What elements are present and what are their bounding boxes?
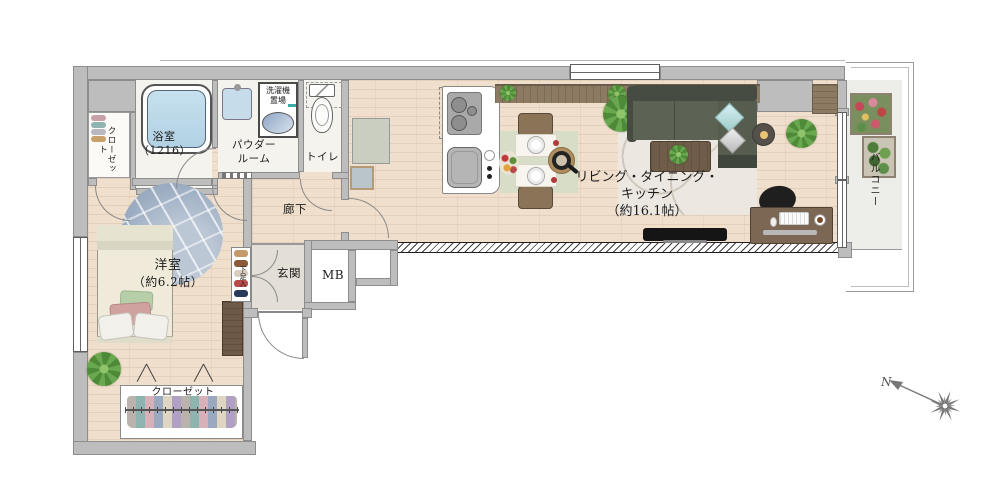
entrance-label: 玄関 (272, 266, 306, 281)
plant (669, 145, 688, 164)
toilet-label: トイレ (304, 151, 341, 165)
wall (73, 441, 256, 455)
plant (786, 119, 817, 148)
bedroom-closet-label: クローゼット (146, 386, 220, 399)
washbasin-faucet (234, 84, 241, 91)
hanging-clothes (91, 115, 106, 121)
wall (390, 250, 398, 286)
ldk-line2: キッチン (552, 187, 742, 204)
laundry-label: 洗濯機 置場 (259, 86, 297, 107)
wall (348, 250, 356, 302)
wall (88, 80, 136, 112)
bedroom-cabinet (222, 301, 243, 356)
hanger-mark (135, 364, 159, 384)
ldk-size: （約16.1帖） (552, 204, 742, 221)
wall (73, 66, 570, 80)
bathroom-size: （1216） (138, 144, 190, 158)
wall (304, 240, 398, 250)
window (73, 237, 88, 352)
plate (527, 167, 545, 185)
stove-burner (451, 97, 467, 113)
tall-cabinet (812, 84, 838, 114)
wall (757, 80, 813, 112)
north-label: N (880, 375, 892, 389)
wall (660, 66, 845, 80)
balcony-window (837, 180, 847, 248)
wall (73, 66, 88, 237)
vegetable-plate (499, 151, 519, 175)
mouse (770, 217, 777, 227)
kitchen-knob (487, 166, 492, 171)
bedroom-name: 洋室 (126, 258, 210, 275)
wall (332, 172, 349, 179)
shoe-cabinet-label: 下足入 (236, 256, 246, 296)
laundry-line2: 置場 (259, 96, 297, 106)
entrance-step-line (252, 243, 304, 245)
balcony-label: バルコニー (860, 146, 878, 212)
kitchen-knob (487, 174, 492, 179)
bathroom-name: 浴室 (138, 130, 190, 144)
meter-box-label: MB (318, 268, 348, 284)
wall (341, 80, 349, 200)
dining-chair (518, 113, 553, 136)
sofa-chaise-end (718, 155, 757, 168)
floor-plan: クローゼット 浴室 （1216） パウダー ルーム 洗濯機 置場 トイレ 廊下 … (0, 0, 1000, 486)
toilet-seat (315, 104, 329, 126)
pillow-white (97, 312, 134, 341)
balcony-window (837, 112, 847, 180)
coffee-cup-inner (817, 217, 823, 223)
sofa-back (633, 85, 757, 101)
hanger-mark (192, 364, 216, 384)
dining-chair (518, 186, 553, 209)
powder-sliding-door (222, 172, 252, 179)
closet-left-label: クローゼット (101, 124, 115, 176)
plant (500, 85, 516, 101)
red-dish (553, 140, 559, 146)
wall (88, 178, 97, 186)
pot-contents (556, 155, 567, 166)
bedroom-size: （約6.2帖） (126, 275, 210, 291)
powder-room-label: パウダー ルーム (226, 139, 282, 166)
tv-stand (663, 240, 707, 243)
washing-machine (262, 112, 294, 134)
plate (527, 136, 545, 154)
wall (212, 80, 218, 148)
pillow-white (133, 312, 170, 341)
outer-guide-line (160, 60, 845, 61)
ldk-label: リビング・ダイニング・ キッチン （約16.1帖） (552, 170, 742, 221)
balcony-planter-flowers (850, 93, 892, 135)
powder-room-line1: パウダー (226, 139, 282, 153)
toilet-tank (309, 84, 335, 97)
hallway-label: 廊下 (278, 202, 312, 217)
washbasin (222, 88, 252, 120)
keyboard (779, 212, 809, 225)
kitchen-cabinet (350, 166, 374, 190)
bathroom-label: 浴室 （1216） (138, 130, 190, 159)
entrance-door-arc (258, 313, 304, 359)
stove-burner (467, 106, 477, 116)
powder-room-line2: ルーム (226, 153, 282, 167)
sofa-seat (633, 101, 718, 140)
floor-lamp-glow (760, 131, 768, 139)
kitchen-sink-inner (451, 151, 478, 184)
closet-rod (125, 409, 239, 411)
refrigerator (352, 118, 390, 164)
wall (243, 308, 258, 318)
bed-blanket-band (97, 241, 173, 250)
plant (87, 352, 121, 386)
kitchen-faucet (484, 150, 495, 161)
window (570, 64, 660, 80)
stove-burner (451, 115, 467, 131)
bedroom-label: 洋室 （約6.2帖） (126, 258, 210, 290)
wall (73, 352, 88, 455)
compass: N (845, 340, 975, 432)
ldk-line1: リビング・ダイニング・ (552, 170, 742, 187)
monitor (763, 230, 817, 235)
laundry-line1: 洗濯機 (259, 86, 297, 96)
bed-blanket-band (97, 225, 173, 241)
